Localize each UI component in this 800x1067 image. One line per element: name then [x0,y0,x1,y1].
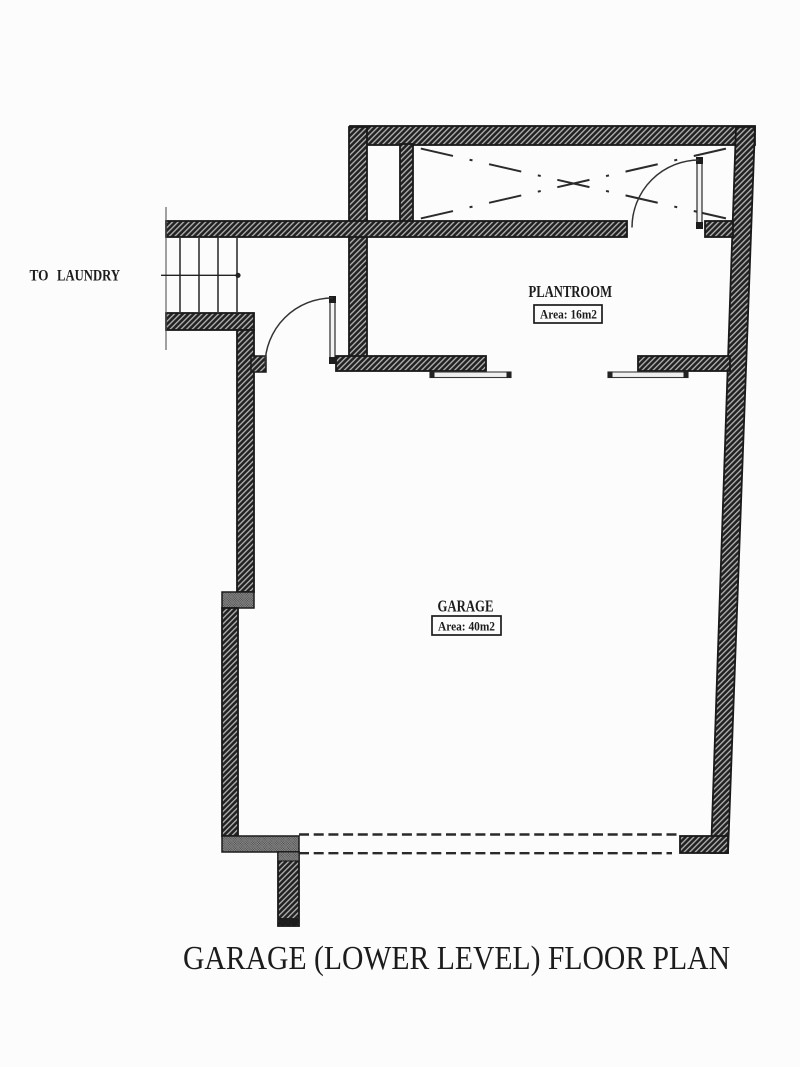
svg-text:Area: 40m2: Area: 40m2 [438,619,495,634]
svg-text:GARAGE: GARAGE [438,597,494,616]
svg-text:GARAGE (LOWER LEVEL) FLOOR PLA: GARAGE (LOWER LEVEL) FLOOR PLAN [183,940,730,977]
svg-text:Area: 16m2: Area: 16m2 [540,307,597,322]
svg-text:TO: TO [30,268,49,285]
svg-text:LAUNDRY: LAUNDRY [57,268,120,285]
svg-text:PLANTROOM: PLANTROOM [529,282,613,301]
